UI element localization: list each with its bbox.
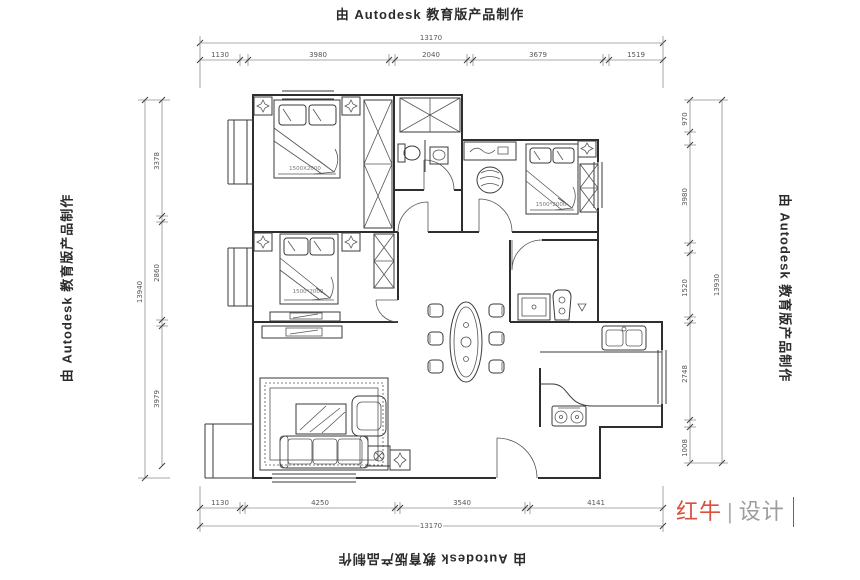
dim-right-seg: 3980 xyxy=(681,188,689,206)
dim-top-seg: 1519 xyxy=(627,51,645,59)
pouf xyxy=(477,167,503,193)
side-table-lamp xyxy=(368,446,390,466)
wardrobe-master xyxy=(364,100,392,228)
floor-drain xyxy=(578,304,586,311)
dim-top-total: 13170 xyxy=(420,34,442,42)
dimensions-bottom: 1130 4250 3540 4141 13170 xyxy=(197,486,666,532)
pier-star xyxy=(254,97,272,115)
bedroom-second: 1500*2000 xyxy=(270,234,394,321)
dim-bottom-seg: 4141 xyxy=(587,499,605,507)
dim-right-seg: 2748 xyxy=(681,365,689,383)
tv-cabinet-bedroom xyxy=(270,312,340,321)
bathroom-top xyxy=(398,98,460,172)
windows xyxy=(234,91,666,482)
dimensions-right: 970 3980 1520 2748 1008 13930 xyxy=(681,97,728,466)
pier-star xyxy=(342,97,360,115)
dim-left-seg: 3979 xyxy=(153,390,161,408)
dim-left-seg: 3378 xyxy=(153,152,161,170)
bathroom-middle xyxy=(518,290,586,320)
pier-star xyxy=(342,233,360,251)
counter-edge xyxy=(540,384,662,406)
dim-top-seg: 2040 xyxy=(422,51,440,59)
stove xyxy=(552,406,586,426)
dim-top-seg: 1130 xyxy=(211,51,229,59)
armchair xyxy=(352,396,386,436)
dim-top-seg: 3679 xyxy=(529,51,547,59)
floor-plan-drawing: 1500X2000 1500*2000 1500*2000 xyxy=(0,0,860,580)
kitchen xyxy=(540,326,662,426)
dim-left-seg: 2860 xyxy=(153,264,161,282)
living-room xyxy=(260,326,390,470)
dim-left-total: 13940 xyxy=(136,281,144,303)
dining-table xyxy=(450,302,482,382)
floor-lamp-symbol xyxy=(390,450,410,470)
dining-area xyxy=(428,302,504,382)
area-rug xyxy=(260,378,388,470)
bed-size-label: 1500*2000 xyxy=(536,202,567,208)
kitchen-sink xyxy=(602,326,646,350)
dim-right-seg: 1520 xyxy=(681,279,689,297)
tv-cabinet-living xyxy=(262,326,342,338)
bed-size-label: 1500X2000 xyxy=(289,166,321,172)
dim-bottom-seg: 3540 xyxy=(453,499,471,507)
dim-bottom-seg: 1130 xyxy=(211,499,229,507)
pier-star xyxy=(254,233,272,251)
dimensions-top: 13170 1130 3980 2040 3679 1519 xyxy=(197,34,666,88)
sofa xyxy=(280,436,368,468)
toilet xyxy=(553,290,571,320)
pier-star xyxy=(578,141,596,157)
dim-right-seg: 970 xyxy=(681,112,689,125)
dim-right-seg: 1008 xyxy=(681,439,689,457)
dim-bottom-total: 13170 xyxy=(420,522,442,530)
bedroom-third: 1500*2000 xyxy=(464,142,598,214)
dim-top-seg: 3980 xyxy=(309,51,327,59)
washbasin xyxy=(518,294,550,320)
bed-size-label: 1500*2000 xyxy=(293,289,324,295)
dining-chairs xyxy=(428,304,504,373)
wardrobe-second xyxy=(374,234,394,288)
toilet xyxy=(398,144,420,162)
bedroom-master: 1500X2000 xyxy=(274,100,392,228)
storage-cabinet xyxy=(400,98,460,132)
dim-bottom-seg: 4250 xyxy=(311,499,329,507)
dresser xyxy=(464,142,516,160)
dimensions-left: 13940 3378 2860 3979 xyxy=(136,97,170,481)
coffee-table xyxy=(296,404,346,434)
dim-right-total: 13930 xyxy=(713,274,721,296)
doors xyxy=(376,160,542,478)
